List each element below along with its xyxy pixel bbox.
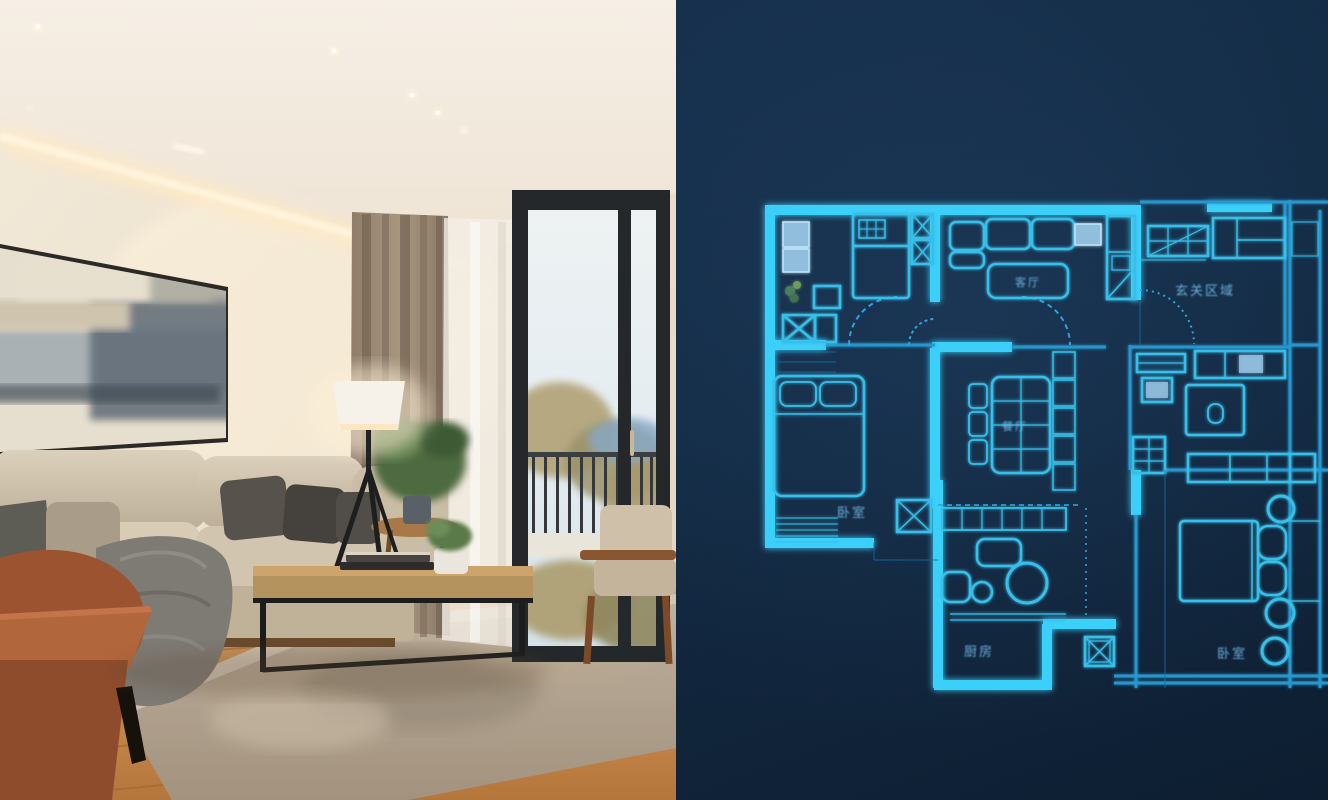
bathroom-group <box>1133 351 1315 482</box>
pillow-icon <box>780 382 816 406</box>
pillow-charcoal <box>219 475 291 542</box>
sofa-seat-icon <box>986 219 1030 249</box>
kitchen-group <box>942 508 1114 666</box>
entry-cabinet-icon <box>1213 218 1285 258</box>
sofa-seat-icon <box>950 222 984 250</box>
furniture <box>774 214 1320 666</box>
books-stack <box>340 552 434 570</box>
tv-icon <box>1075 224 1101 245</box>
label-bedroom-right: 卧室 <box>1217 646 1247 662</box>
label-kitchen: 厨房 <box>964 644 994 660</box>
side-table-icon <box>814 286 840 308</box>
cabinet-icon <box>1053 352 1075 378</box>
walls-medium <box>826 200 1328 688</box>
sofa-seat-icon <box>1032 219 1074 249</box>
label-entry-area: 玄关区域 <box>1175 284 1235 299</box>
label-bedroom-left: 卧室 <box>837 505 867 521</box>
plant-icon <box>785 281 801 303</box>
label-living-room: 客厅 <box>1015 275 1041 289</box>
island-icon <box>977 539 1021 566</box>
split-composite: 客厅 玄关区域 餐厅 卧室 厨房 卧室 <box>0 0 1328 800</box>
stool-icon <box>1262 638 1288 664</box>
blueprint-panel: 客厅 玄关区域 餐厅 卧室 厨房 卧室 <box>676 0 1328 800</box>
sink-corner-icon <box>942 572 970 602</box>
bed-icon <box>853 214 909 298</box>
counter-strip-icon <box>942 508 1066 530</box>
living-room-group <box>950 216 1135 299</box>
window-box-icon <box>783 222 809 247</box>
chair-icon <box>969 384 987 408</box>
label-dining: 餐厅 <box>1002 419 1028 433</box>
stool-icon <box>972 582 992 602</box>
bed-icon <box>774 376 864 496</box>
round-table-icon <box>1007 563 1047 603</box>
interior-photo-panel <box>0 0 676 800</box>
entry-group <box>1148 218 1285 258</box>
bed-icon <box>1180 521 1258 601</box>
construction-lines <box>776 300 1165 688</box>
window-box-icon <box>783 249 809 272</box>
chair-icon <box>969 412 987 436</box>
floor-plan: 客厅 玄关区域 餐厅 卧室 厨房 卧室 <box>676 0 1328 800</box>
bedroom1-group <box>783 214 933 342</box>
cabinet-icon <box>1107 216 1135 299</box>
pillow-icon <box>1258 526 1286 559</box>
bedroom3-group <box>1180 496 1320 664</box>
interior-photo <box>0 0 676 800</box>
door-handle <box>630 430 634 456</box>
pillow-icon <box>1258 562 1286 595</box>
shadow <box>110 646 550 698</box>
pillow-icon <box>820 382 856 406</box>
sofa-arm-icon <box>950 252 984 268</box>
toilet-icon <box>1208 404 1223 423</box>
chair-icon <box>969 440 987 464</box>
wardrobe-strip-icon <box>1188 454 1315 482</box>
sink-icon <box>1239 355 1263 373</box>
shower-icon <box>1186 385 1244 435</box>
